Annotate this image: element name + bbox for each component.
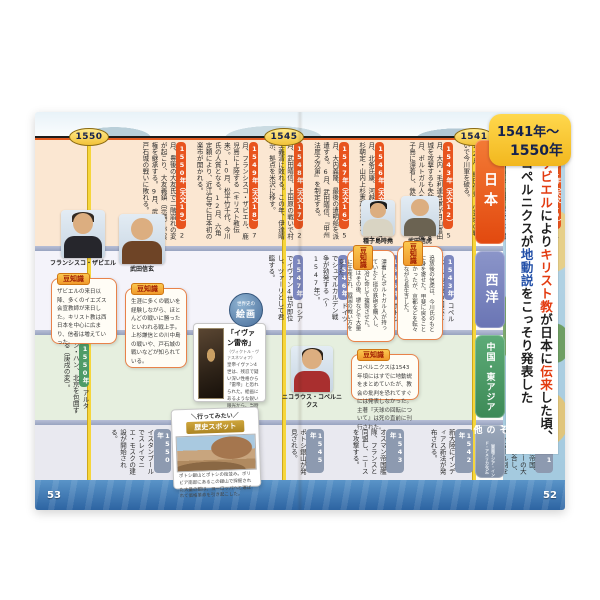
badge-main-text: 絵画: [236, 307, 256, 320]
title-seg: をこっそり発表した: [519, 287, 534, 404]
trivia-text: 追放後の信虎は、今川氏のもとに身を寄せた。甲斐に戻ることはなかったが、京都などを…: [402, 255, 434, 332]
potosi-photo: [176, 434, 257, 473]
range-line2: 1550年: [510, 140, 571, 160]
entry-text: 新大陸にインディアス新法が発布される。: [429, 429, 455, 475]
timeline-entry: 1547年ロシアでイヴァン4世が即位し、ツァーリとして君臨する。: [266, 255, 303, 326]
row-label-other: その他 （東南アジア・インド・アメリカなど）: [475, 425, 505, 478]
portrait-face: [302, 349, 321, 369]
timeline-entry: 1542年新大陸にインディアス新法が発布される。: [428, 429, 473, 476]
portrait-name-shingen: 武田信玄: [115, 266, 169, 274]
portrait-robe: [122, 241, 162, 264]
spot-caption: ポトシ銀山とポトシの街並み。ボリビア南部にあるこの銀山で採掘された大量の銀は、ヨ…: [177, 472, 258, 502]
entry-year-badge: 1547年（天文16）: [339, 142, 349, 229]
portrait-robe: [294, 371, 330, 392]
year-badge-1545: 1545: [264, 128, 304, 146]
entry-text: イスタンブールでスレイマニエ・モスクの建設が開始される。: [109, 429, 153, 475]
portrait-face: [73, 213, 93, 234]
page-number-right: 52: [543, 490, 557, 501]
portrait-robe: [404, 218, 437, 236]
title-seg: キリスト教: [538, 248, 553, 313]
painting-card-ivan: 「イヴァン雷帝」 （ヴィクトル・ヴァスネツォフ） 皇帝イヴァン4世は、残忍で疑い…: [193, 323, 266, 402]
entry-year-badge: 1550年: [79, 342, 89, 387]
entry-year-badge: 1545年: [306, 429, 324, 473]
entry-year-badge: 1550年（天文19）: [176, 142, 186, 229]
entry-year-badge: 1548年（天文17）: [294, 142, 304, 229]
portrait-name-xavier: フランシスコ・ザビエル: [49, 260, 117, 268]
portrait-xavier: [61, 210, 105, 258]
row-label-china: 中国・東アジア: [475, 335, 505, 418]
trivia-bubble-shingen: 豆知識 生涯に多くの戦いを経験しながら、ほとんどの戦いに勝ったといわれる戦上手。…: [125, 288, 187, 368]
trivia-text: ザビエルの来日以降、多くのイエズス会宣教師が来日した。キリスト教は西日本を中心に…: [57, 289, 107, 346]
entry-year-badge: 1543年: [444, 255, 454, 300]
timeline-entry: 1550年イスタンブールでスレイマニエ・モスクの建設が開始される。: [108, 429, 171, 476]
timeline-entry: 1543年オスマン帝国艦隊、フランスと同盟し、ニースを攻撃する。: [350, 429, 404, 476]
timeline-entry: 1547年（天文16）5月、大内義隆、最後の遣明船を派遣する。6月、武田晴信、『…: [311, 142, 348, 242]
portrait-tokitaka: [361, 200, 395, 236]
entry-text: ポトシ銀山が発見される。: [289, 429, 306, 475]
book-spread: 1550 1545 1541 1541年〜 1550年 ザビエルによりキリスト教…: [35, 112, 565, 510]
row-label-other-main: その他: [471, 425, 510, 439]
trivia-tag: 豆知識: [131, 283, 164, 295]
timeline-entry: 1549年（天文18）7月、フランシスコ・ザビエル、鹿児島に上陸する（キリスト教…: [194, 142, 258, 242]
portrait-copernicus: [291, 346, 333, 392]
ivan-painting-image: [198, 328, 224, 399]
entry-text: 7月、フランシスコ・ザビエル、鹿児島に上陸する（キリスト教伝来）。10月、松平竹…: [195, 142, 258, 240]
painting-artist: （ヴィクトル・ヴァスネツォフ）: [227, 349, 261, 361]
trivia-tag: 豆知識: [57, 273, 90, 285]
painting-title: 「イヴァン雷帝」: [227, 328, 261, 348]
trivia-text: 生涯に多くの戦いを経験しながら、ほとんどの戦いに勝ったといわれる戦上手。上杉謙信…: [131, 299, 181, 365]
trivia-bubble-copernicus: 豆知識 コペルニクスは1543年頃にはすでに地動説をまとめていたが、教会の批判を…: [351, 354, 419, 400]
page-title: ザビエルによりキリスト教が日本に伝来した頃、 コペルニクスが地動説をこっそり発表…: [506, 152, 558, 454]
entry-year-badge: 1543年: [386, 429, 404, 473]
ocean-footer-band: [35, 480, 565, 510]
title-seg: が日本に: [538, 313, 553, 365]
title-seg: 地動説: [519, 248, 534, 287]
trivia-tag: 豆知識: [357, 349, 390, 361]
title-seg: した頃、: [538, 391, 553, 443]
trivia-bubble-tokitaka: 豆知識 漂着したポルトガル人が持っていた2挺の鉄砲を購入し、刀鍛冶に命じて複製さ…: [347, 250, 395, 342]
portrait-face: [370, 203, 386, 219]
portrait-robe: [64, 236, 102, 258]
row-label-west: 西洋: [475, 251, 505, 328]
portrait-shingen: [119, 214, 165, 264]
trivia-tag: 豆知識: [353, 245, 373, 270]
trivia-tag: 豆知識: [403, 241, 423, 266]
row-label-other-sub: （東南アジア・インド・アメリカなど）: [484, 441, 496, 478]
world-art-badge: 世界史の 絵画: [229, 293, 263, 327]
history-spot-card: ＼行ってみたい／ 歴史スポット ポトシ銀山とポトシの街並み。ボリビア南部にあるこ…: [171, 406, 262, 489]
trivia-bubble-nobutora: 豆知識 追放後の信虎は、今川氏のもとに身を寄せた。甲斐に戻ることはなかったが、京…: [397, 246, 443, 340]
portrait-nobutora: [401, 196, 439, 236]
entry-year-badge: 1543年（天文12）: [443, 142, 453, 229]
portrait-name-copernicus: ニコラウス・コペルニクス: [279, 394, 345, 410]
trivia-bubble-xavier: 豆知識 ザビエルの来日以降、多くのイエズス会宣教師が来日した。キリスト教は西日本…: [51, 278, 117, 344]
entry-year-badge: 1549年（天文18）: [249, 142, 259, 229]
portrait-face: [411, 199, 428, 217]
trivia-text: コペルニクスは1543年頃にはすでに地動説をまとめていたが、教会の批判を恐れてす…: [357, 365, 412, 431]
portrait-face: [131, 218, 152, 240]
entry-year-badge: 1550年: [154, 429, 172, 473]
timeline-entry: 1548年（天文17）2月、武田晴信、上田原の戦いで村上義清に敗れる。この年、伊…: [266, 142, 303, 242]
entry-text: オスマン帝国艦隊、フランスと同盟し、ニースを攻撃する。: [351, 429, 386, 475]
timeline-entry: 1545年ポトシ銀山が発見される。: [288, 429, 324, 476]
row-divider: [35, 420, 503, 425]
page-number-left: 53: [47, 490, 61, 501]
page-year-range-badge: 1541年〜 1550年: [489, 114, 571, 166]
title-seg: により: [538, 209, 553, 248]
painting-info: 「イヴァン雷帝」 （ヴィクトル・ヴァスネツォフ） 皇帝イヴァン4世は、残忍で疑い…: [227, 328, 261, 397]
spot-ribbon: 歴史スポット: [186, 420, 244, 434]
range-line1: 1541年〜: [497, 121, 571, 140]
title-seg: コペルニクスが: [519, 157, 534, 248]
year-badge-1550: 1550: [69, 128, 109, 146]
title-seg: 伝来: [538, 365, 553, 391]
china-entry: 1550年アルタン・ハン、北京を包囲する（庚戌の変）。: [61, 342, 89, 414]
entry-year-badge: 1547年: [293, 255, 303, 300]
portrait-robe: [363, 219, 392, 236]
